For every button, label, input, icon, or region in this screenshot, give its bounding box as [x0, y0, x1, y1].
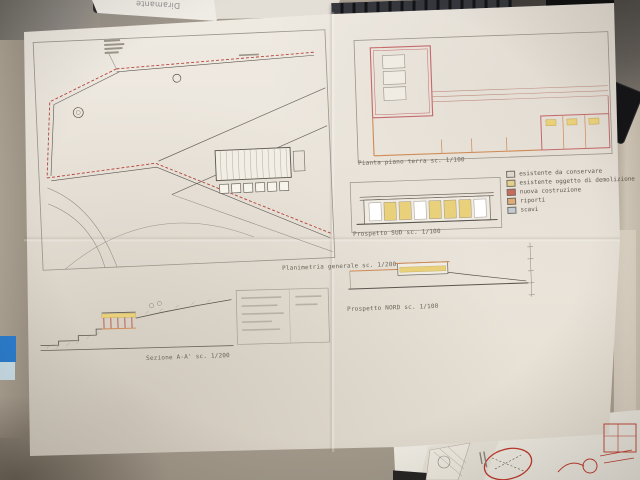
legend-label: riporti [520, 197, 546, 205]
legend-swatch [506, 180, 515, 187]
legend-swatch [507, 189, 516, 196]
site-plan-drawing [33, 30, 335, 271]
sheet-drawings [0, 0, 640, 480]
legend-swatch [507, 207, 516, 214]
north-elevation-drawing [347, 243, 535, 303]
legend: esistente da conservare esistente oggett… [506, 166, 620, 215]
floor-plan-drawing [354, 32, 612, 163]
south-elevation-drawing [350, 177, 502, 232]
under-sheet-sketches [426, 424, 636, 480]
section-drawing [39, 288, 329, 351]
photo-of-architectural-drawing: Diramante [0, 0, 640, 480]
legend-swatch [507, 198, 516, 205]
legend-swatch [506, 171, 515, 178]
legend-label: scavi [520, 206, 538, 214]
